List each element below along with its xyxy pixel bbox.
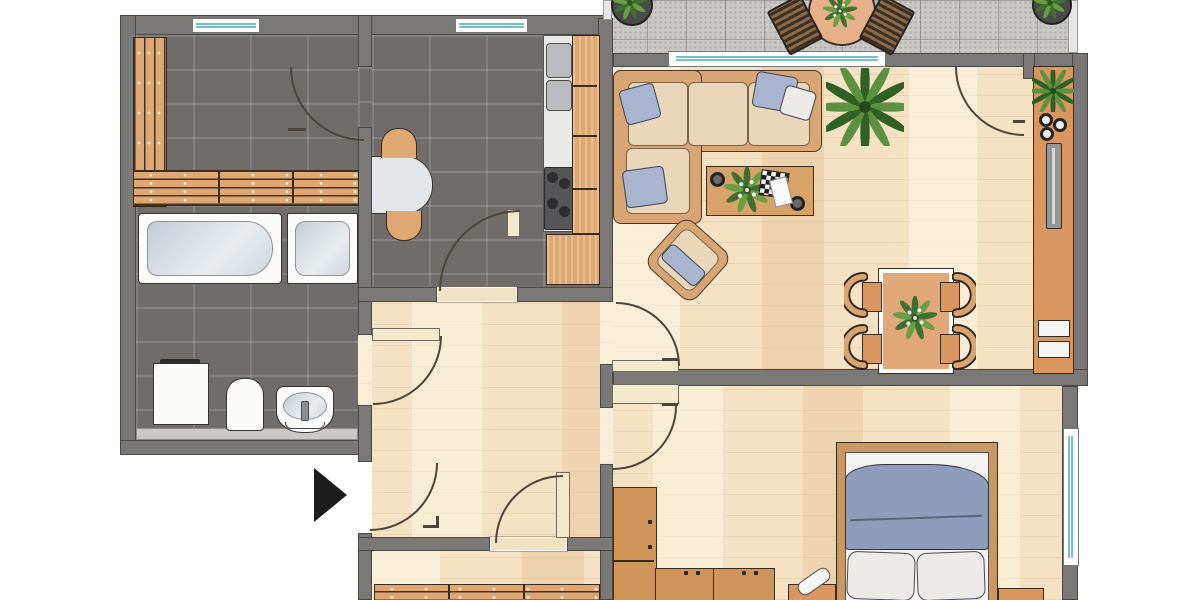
kitchen-stool-top bbox=[381, 128, 417, 158]
cabinet-divider-1 bbox=[573, 85, 597, 87]
wall-bath-right-a bbox=[358, 15, 372, 67]
bed-pillow-left bbox=[846, 551, 916, 600]
wall-living-right bbox=[1072, 53, 1088, 386]
kitchen-window-glass bbox=[459, 23, 524, 28]
coffee-table-bowl-1 bbox=[710, 172, 725, 187]
entrance-arrow-icon bbox=[314, 468, 347, 522]
floor-plan bbox=[0, 0, 1200, 600]
wardrobe-left-divider bbox=[614, 560, 654, 562]
wall-hall-right-a bbox=[600, 364, 613, 408]
sofa-pillow-4 bbox=[622, 165, 669, 208]
dining-chair-3 bbox=[952, 272, 976, 318]
kitchen-sink-2 bbox=[546, 80, 572, 111]
balcony-table-plant bbox=[823, 0, 857, 28]
bathtub bbox=[138, 213, 282, 284]
wall-kitchen-bottom-b bbox=[517, 287, 613, 302]
shower bbox=[287, 213, 358, 284]
dining-chair-2 bbox=[844, 324, 868, 370]
sideboard-bowl-1 bbox=[1039, 113, 1053, 127]
wardrobe-handle-4 bbox=[696, 571, 700, 575]
bottom-radiator-divider-1 bbox=[448, 585, 450, 599]
burner-1 bbox=[547, 172, 558, 183]
bottom-room-radiator bbox=[374, 584, 600, 600]
toilet bbox=[226, 378, 264, 431]
tv bbox=[1046, 143, 1062, 229]
sideboard-bowl-2 bbox=[1053, 118, 1067, 132]
kitchen-sink bbox=[546, 43, 572, 78]
wall-hall-bottom-b bbox=[567, 537, 613, 551]
wardrobe-handle-6 bbox=[754, 571, 758, 575]
blanket-fold-line bbox=[850, 515, 982, 522]
washing-machine-top bbox=[160, 359, 200, 364]
bath-bench-divider-1 bbox=[218, 171, 220, 203]
living-room-window bbox=[668, 51, 886, 67]
bedroom-window-glass bbox=[1068, 436, 1073, 558]
cabinet-divider-2 bbox=[573, 135, 597, 137]
bathroom-window-glass bbox=[196, 23, 256, 28]
wall-central-band bbox=[613, 369, 1088, 386]
door-leaf-bedroom bbox=[613, 385, 678, 403]
bedroom-window bbox=[1063, 428, 1079, 566]
burner-4 bbox=[559, 206, 570, 217]
hall-bedroom-opening bbox=[600, 408, 613, 464]
door-jamb-entrance-b bbox=[436, 516, 439, 528]
wash-basin-towel-bar bbox=[285, 422, 325, 429]
kitchen-table bbox=[372, 156, 433, 214]
wall-hall-right-b bbox=[600, 464, 613, 600]
wardrobe-handle-2 bbox=[648, 545, 652, 549]
wardrobe-handle-3 bbox=[684, 571, 688, 575]
burner-2 bbox=[559, 178, 570, 189]
hall-living-opening bbox=[600, 302, 613, 364]
bed-pillow-right bbox=[916, 551, 986, 600]
door-jamb-kitchen-to-bathroom bbox=[288, 128, 306, 131]
living-room-plant bbox=[826, 68, 904, 146]
sideboard-bowl-3 bbox=[1040, 127, 1054, 141]
sofa-cushion-2 bbox=[688, 82, 748, 146]
wash-basin bbox=[276, 386, 334, 433]
living-room-window-glass bbox=[676, 56, 878, 61]
hifi-stack-2 bbox=[1038, 341, 1070, 358]
bed-blanket bbox=[845, 464, 989, 550]
bathtub-inner bbox=[147, 221, 273, 276]
wardrobe-left bbox=[613, 487, 657, 600]
cabinet-divider-3 bbox=[573, 188, 597, 190]
bath-bench-horizontal bbox=[133, 170, 359, 206]
tv-screen-line bbox=[1052, 148, 1055, 224]
wardrobe-handle-5 bbox=[742, 571, 746, 575]
dining-chair-1 bbox=[844, 272, 868, 318]
balcony-plant-left bbox=[613, 0, 647, 20]
dining-chair-4 bbox=[952, 324, 976, 370]
bottom-radiator-divider-2 bbox=[523, 585, 525, 599]
kitchen-base-cabinet bbox=[546, 234, 600, 285]
bathroom-window bbox=[192, 18, 260, 33]
dining-table-plant bbox=[893, 296, 937, 340]
shower-inner bbox=[295, 221, 350, 276]
door-jamb-bedroom bbox=[662, 403, 678, 406]
kitchen-window bbox=[455, 18, 528, 33]
door-jamb-balcony bbox=[1013, 120, 1025, 123]
wall-kitchen-right bbox=[598, 18, 613, 302]
wall-hall-bottom-a bbox=[358, 537, 490, 551]
burner-3 bbox=[547, 198, 558, 209]
nightstand-right bbox=[998, 588, 1044, 600]
bathroom-door-threshold bbox=[358, 335, 372, 405]
wash-basin-faucet bbox=[301, 401, 309, 421]
wall-bath-right-b bbox=[358, 127, 372, 335]
hifi-stack-1 bbox=[1038, 320, 1070, 337]
wardrobe-handle-1 bbox=[648, 520, 652, 524]
wall-kitchen-bottom-a bbox=[358, 287, 437, 302]
bath-bench-divider-2 bbox=[292, 171, 294, 203]
sideboard-plant bbox=[1032, 70, 1074, 112]
washing-machine bbox=[153, 363, 209, 425]
wall-bath-right-c bbox=[358, 405, 372, 462]
door-jamb-living-room bbox=[662, 358, 678, 361]
balcony-plant-right bbox=[1034, 0, 1066, 19]
stove bbox=[544, 167, 574, 230]
wall-bath-bottom bbox=[120, 440, 372, 455]
